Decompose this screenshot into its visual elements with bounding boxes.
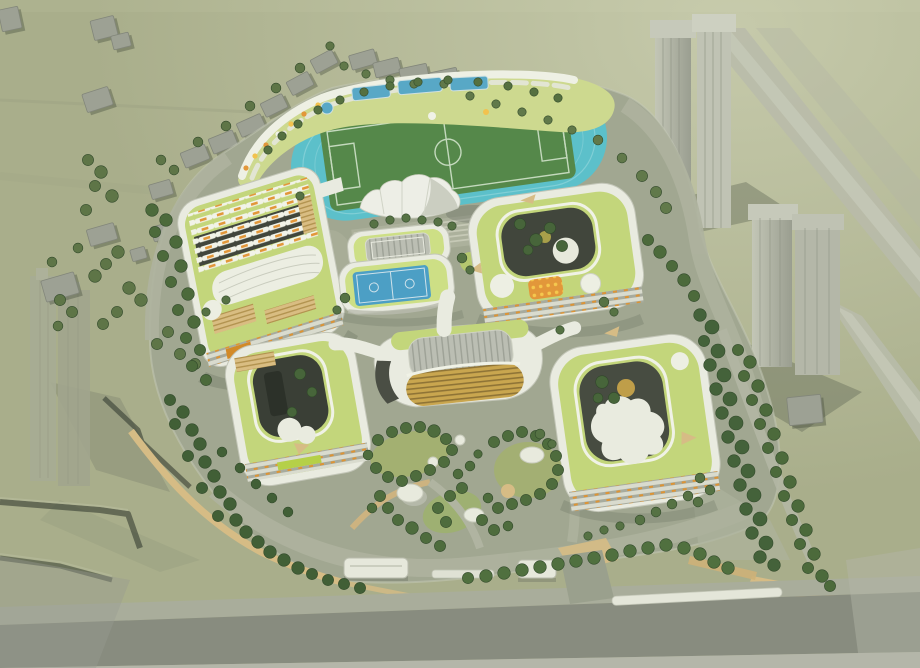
tree bbox=[693, 497, 703, 507]
tree bbox=[217, 447, 227, 457]
tree bbox=[151, 338, 162, 349]
tree bbox=[695, 473, 705, 483]
tree bbox=[520, 494, 531, 505]
tree bbox=[474, 78, 482, 86]
rendering-stage bbox=[0, 0, 920, 668]
tree bbox=[667, 499, 677, 509]
tree bbox=[89, 270, 102, 283]
tree bbox=[688, 290, 699, 301]
tree bbox=[212, 510, 223, 521]
tree bbox=[444, 76, 452, 84]
tree bbox=[363, 450, 373, 460]
tree bbox=[418, 216, 426, 224]
tree bbox=[410, 470, 421, 481]
tree bbox=[824, 580, 835, 591]
tree bbox=[784, 476, 797, 489]
tree bbox=[534, 488, 545, 499]
tree bbox=[550, 450, 561, 461]
sports-hall-block bbox=[334, 222, 456, 317]
tree bbox=[402, 214, 410, 222]
tree bbox=[440, 433, 451, 444]
tree bbox=[283, 507, 293, 517]
tree bbox=[438, 456, 449, 467]
tree bbox=[747, 488, 761, 502]
tree bbox=[278, 132, 286, 140]
tree bbox=[606, 549, 619, 562]
tree bbox=[386, 216, 394, 224]
tree bbox=[635, 515, 645, 525]
tree bbox=[434, 218, 442, 226]
tree bbox=[711, 344, 725, 358]
tree bbox=[624, 545, 637, 558]
tree bbox=[593, 393, 603, 403]
tree bbox=[642, 542, 655, 555]
tree bbox=[593, 135, 603, 145]
tree bbox=[392, 514, 403, 525]
tree bbox=[506, 498, 517, 509]
context-building bbox=[787, 394, 824, 425]
tree bbox=[480, 570, 493, 583]
tree bbox=[177, 406, 190, 419]
tree bbox=[292, 562, 305, 575]
tree bbox=[444, 490, 455, 501]
tree bbox=[660, 202, 671, 213]
tree bbox=[599, 297, 609, 307]
tree bbox=[462, 572, 473, 583]
tree bbox=[95, 166, 108, 179]
tree bbox=[678, 274, 691, 287]
tree bbox=[705, 485, 715, 495]
tree bbox=[728, 455, 741, 468]
tree bbox=[367, 503, 377, 513]
tree bbox=[200, 374, 211, 385]
tree bbox=[414, 421, 425, 432]
tree bbox=[723, 392, 737, 406]
tree bbox=[100, 258, 111, 269]
tree bbox=[160, 214, 173, 227]
tree bbox=[434, 540, 445, 551]
tree bbox=[264, 146, 272, 154]
tree bbox=[165, 276, 176, 287]
tree bbox=[502, 430, 513, 441]
tree bbox=[370, 462, 381, 473]
tree bbox=[554, 94, 562, 102]
tree bbox=[278, 554, 291, 567]
courtyard-building-ne bbox=[461, 179, 648, 328]
tree bbox=[802, 562, 813, 573]
tree bbox=[760, 404, 773, 417]
tree bbox=[382, 502, 393, 513]
tree bbox=[287, 407, 297, 417]
tree bbox=[333, 306, 341, 314]
tree bbox=[516, 564, 529, 577]
tree bbox=[770, 466, 781, 477]
tree bbox=[683, 491, 693, 501]
tree bbox=[776, 452, 789, 465]
tree bbox=[754, 551, 767, 564]
tree bbox=[762, 442, 773, 453]
tree bbox=[196, 482, 207, 493]
tree bbox=[552, 464, 563, 475]
tree bbox=[596, 376, 609, 389]
tree bbox=[503, 521, 513, 531]
tree bbox=[466, 92, 474, 100]
tree bbox=[322, 574, 333, 585]
tree bbox=[716, 407, 729, 420]
tree bbox=[340, 293, 350, 303]
tree bbox=[666, 260, 677, 271]
tree bbox=[556, 240, 567, 251]
tree bbox=[172, 304, 183, 315]
tree bbox=[457, 253, 467, 263]
tree bbox=[82, 154, 93, 165]
tree bbox=[546, 478, 557, 489]
tree bbox=[492, 502, 503, 513]
tree bbox=[180, 332, 191, 343]
tree bbox=[214, 486, 227, 499]
tree bbox=[530, 234, 543, 247]
tree bbox=[483, 493, 493, 503]
tree bbox=[660, 539, 673, 552]
tree bbox=[432, 502, 443, 513]
tower-slab bbox=[697, 30, 731, 228]
tree bbox=[800, 524, 813, 537]
tower-slab bbox=[752, 215, 792, 367]
tree bbox=[199, 456, 212, 469]
tree bbox=[188, 316, 201, 329]
tree bbox=[66, 306, 77, 317]
tree bbox=[492, 100, 500, 108]
tree bbox=[396, 475, 407, 486]
tree bbox=[816, 570, 829, 583]
tree bbox=[710, 383, 723, 396]
link-wing-north bbox=[441, 297, 451, 330]
tree bbox=[698, 335, 709, 346]
tree bbox=[296, 192, 304, 200]
tree bbox=[414, 78, 422, 86]
tree bbox=[182, 450, 193, 461]
tree bbox=[740, 503, 753, 516]
tree bbox=[245, 101, 255, 111]
tree bbox=[722, 431, 735, 444]
tree bbox=[106, 190, 119, 203]
tree bbox=[386, 426, 397, 437]
tree bbox=[314, 106, 322, 114]
tree bbox=[729, 416, 743, 430]
tree bbox=[306, 568, 317, 579]
tree bbox=[746, 394, 757, 405]
tree bbox=[386, 82, 394, 90]
tree bbox=[424, 464, 435, 475]
tree bbox=[568, 126, 576, 134]
tree bbox=[174, 348, 185, 359]
tree bbox=[175, 260, 188, 273]
tree bbox=[534, 561, 547, 574]
tree bbox=[89, 180, 100, 191]
tree bbox=[651, 507, 661, 517]
tree bbox=[753, 512, 767, 526]
tree bbox=[754, 418, 765, 429]
tree bbox=[768, 428, 781, 441]
tree bbox=[794, 538, 805, 549]
tree bbox=[504, 82, 512, 90]
tree bbox=[734, 479, 747, 492]
tree bbox=[617, 153, 627, 163]
tree bbox=[340, 62, 348, 70]
tree bbox=[271, 83, 281, 93]
tree bbox=[722, 562, 735, 575]
tree bbox=[717, 368, 731, 382]
tree bbox=[448, 222, 456, 230]
tree bbox=[157, 250, 168, 261]
tree bbox=[370, 220, 378, 228]
tree bbox=[465, 461, 475, 471]
tree bbox=[768, 559, 781, 572]
tree bbox=[654, 246, 667, 259]
tree bbox=[73, 243, 83, 253]
tree bbox=[544, 116, 552, 124]
tree bbox=[694, 548, 707, 561]
tree bbox=[636, 170, 647, 181]
tree bbox=[221, 121, 231, 131]
tree bbox=[642, 234, 653, 245]
tree bbox=[738, 370, 749, 381]
tree bbox=[792, 500, 805, 513]
tree bbox=[744, 356, 757, 369]
tree bbox=[156, 155, 166, 165]
tree bbox=[186, 360, 197, 371]
tree bbox=[146, 204, 159, 217]
tree bbox=[523, 245, 533, 255]
tree bbox=[808, 548, 821, 561]
tree bbox=[752, 380, 765, 393]
tree bbox=[112, 246, 125, 259]
tree bbox=[588, 552, 601, 565]
tree bbox=[186, 424, 199, 437]
tree bbox=[746, 527, 759, 540]
tree bbox=[326, 42, 334, 50]
tree bbox=[446, 444, 457, 455]
tree bbox=[252, 536, 265, 549]
tree bbox=[732, 344, 743, 355]
tree bbox=[111, 306, 122, 317]
tree bbox=[600, 526, 608, 534]
tree bbox=[294, 368, 305, 379]
tree bbox=[488, 524, 499, 535]
round-pool bbox=[321, 102, 333, 114]
tree bbox=[440, 516, 451, 527]
tree bbox=[169, 165, 179, 175]
tree bbox=[610, 308, 618, 316]
tree bbox=[694, 309, 707, 322]
tree bbox=[474, 450, 482, 458]
tree bbox=[608, 392, 619, 403]
tree bbox=[400, 422, 411, 433]
tree bbox=[778, 490, 789, 501]
tree bbox=[235, 463, 245, 473]
tree bbox=[97, 318, 108, 329]
tree bbox=[530, 88, 538, 96]
tree bbox=[428, 425, 441, 438]
tree bbox=[267, 493, 277, 503]
tree bbox=[544, 222, 555, 233]
tree bbox=[535, 429, 545, 439]
tree bbox=[374, 490, 385, 501]
tree bbox=[202, 308, 210, 316]
tree bbox=[169, 418, 180, 429]
tree bbox=[194, 344, 205, 355]
campus-aerial-rendering bbox=[0, 0, 920, 668]
tree bbox=[678, 542, 691, 555]
tree bbox=[295, 63, 305, 73]
tree bbox=[456, 482, 467, 493]
tree bbox=[498, 567, 511, 580]
tree bbox=[230, 514, 243, 527]
tree bbox=[170, 236, 183, 249]
tree bbox=[466, 266, 474, 274]
tree bbox=[360, 88, 368, 96]
tree bbox=[382, 471, 393, 482]
tree bbox=[705, 320, 719, 334]
tree bbox=[759, 536, 773, 550]
tree bbox=[741, 464, 755, 478]
tree bbox=[294, 120, 302, 128]
tree bbox=[488, 436, 499, 447]
tree bbox=[251, 479, 261, 489]
tree bbox=[123, 282, 136, 295]
tree bbox=[47, 257, 57, 267]
tree bbox=[552, 558, 565, 571]
tree bbox=[135, 294, 148, 307]
tree bbox=[650, 186, 661, 197]
tree bbox=[735, 440, 749, 454]
tree bbox=[182, 288, 195, 301]
tree bbox=[54, 294, 65, 305]
tree bbox=[556, 326, 564, 334]
tree bbox=[194, 438, 207, 451]
tree bbox=[336, 96, 344, 104]
tree bbox=[518, 108, 526, 116]
tree bbox=[149, 226, 160, 237]
tree bbox=[307, 387, 317, 397]
tree bbox=[264, 546, 277, 559]
tree bbox=[516, 426, 527, 437]
tree bbox=[406, 522, 419, 535]
tree bbox=[420, 532, 431, 543]
tree bbox=[476, 514, 487, 525]
tree bbox=[514, 218, 525, 229]
tree bbox=[164, 394, 175, 405]
tree bbox=[80, 204, 91, 215]
tree bbox=[162, 326, 173, 337]
tree bbox=[704, 359, 717, 372]
bus bbox=[344, 558, 408, 581]
tree bbox=[362, 70, 370, 78]
tree bbox=[453, 469, 463, 479]
tree bbox=[338, 578, 349, 589]
tree bbox=[708, 556, 721, 569]
tree bbox=[193, 137, 203, 147]
tree bbox=[584, 532, 592, 540]
tree bbox=[616, 522, 624, 530]
tree bbox=[786, 514, 797, 525]
tree bbox=[372, 434, 383, 445]
tree bbox=[222, 296, 230, 304]
tan-plaza-circle bbox=[501, 484, 515, 498]
tree bbox=[354, 582, 365, 593]
tree bbox=[224, 498, 237, 511]
tree bbox=[208, 470, 221, 483]
golden-tree bbox=[617, 379, 635, 397]
tree bbox=[548, 440, 556, 448]
tree bbox=[240, 526, 253, 539]
tree bbox=[53, 321, 63, 331]
tree bbox=[570, 555, 583, 568]
